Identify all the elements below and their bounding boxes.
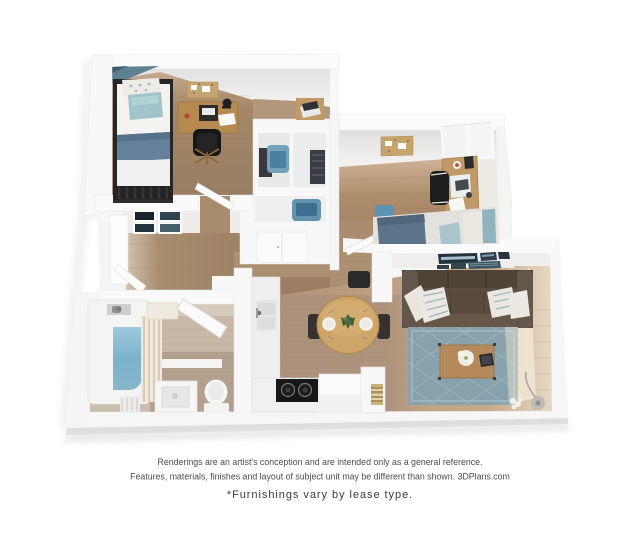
svg-text:Renderings are an artist's con: Renderings are an artist's conception an…: [158, 457, 483, 467]
svg-text:Features, materials, finishes: Features, materials, finishes and layout…: [130, 472, 510, 482]
svg-text:*Furnishings vary by lease typ: *Furnishings vary by lease type.: [227, 489, 413, 501]
